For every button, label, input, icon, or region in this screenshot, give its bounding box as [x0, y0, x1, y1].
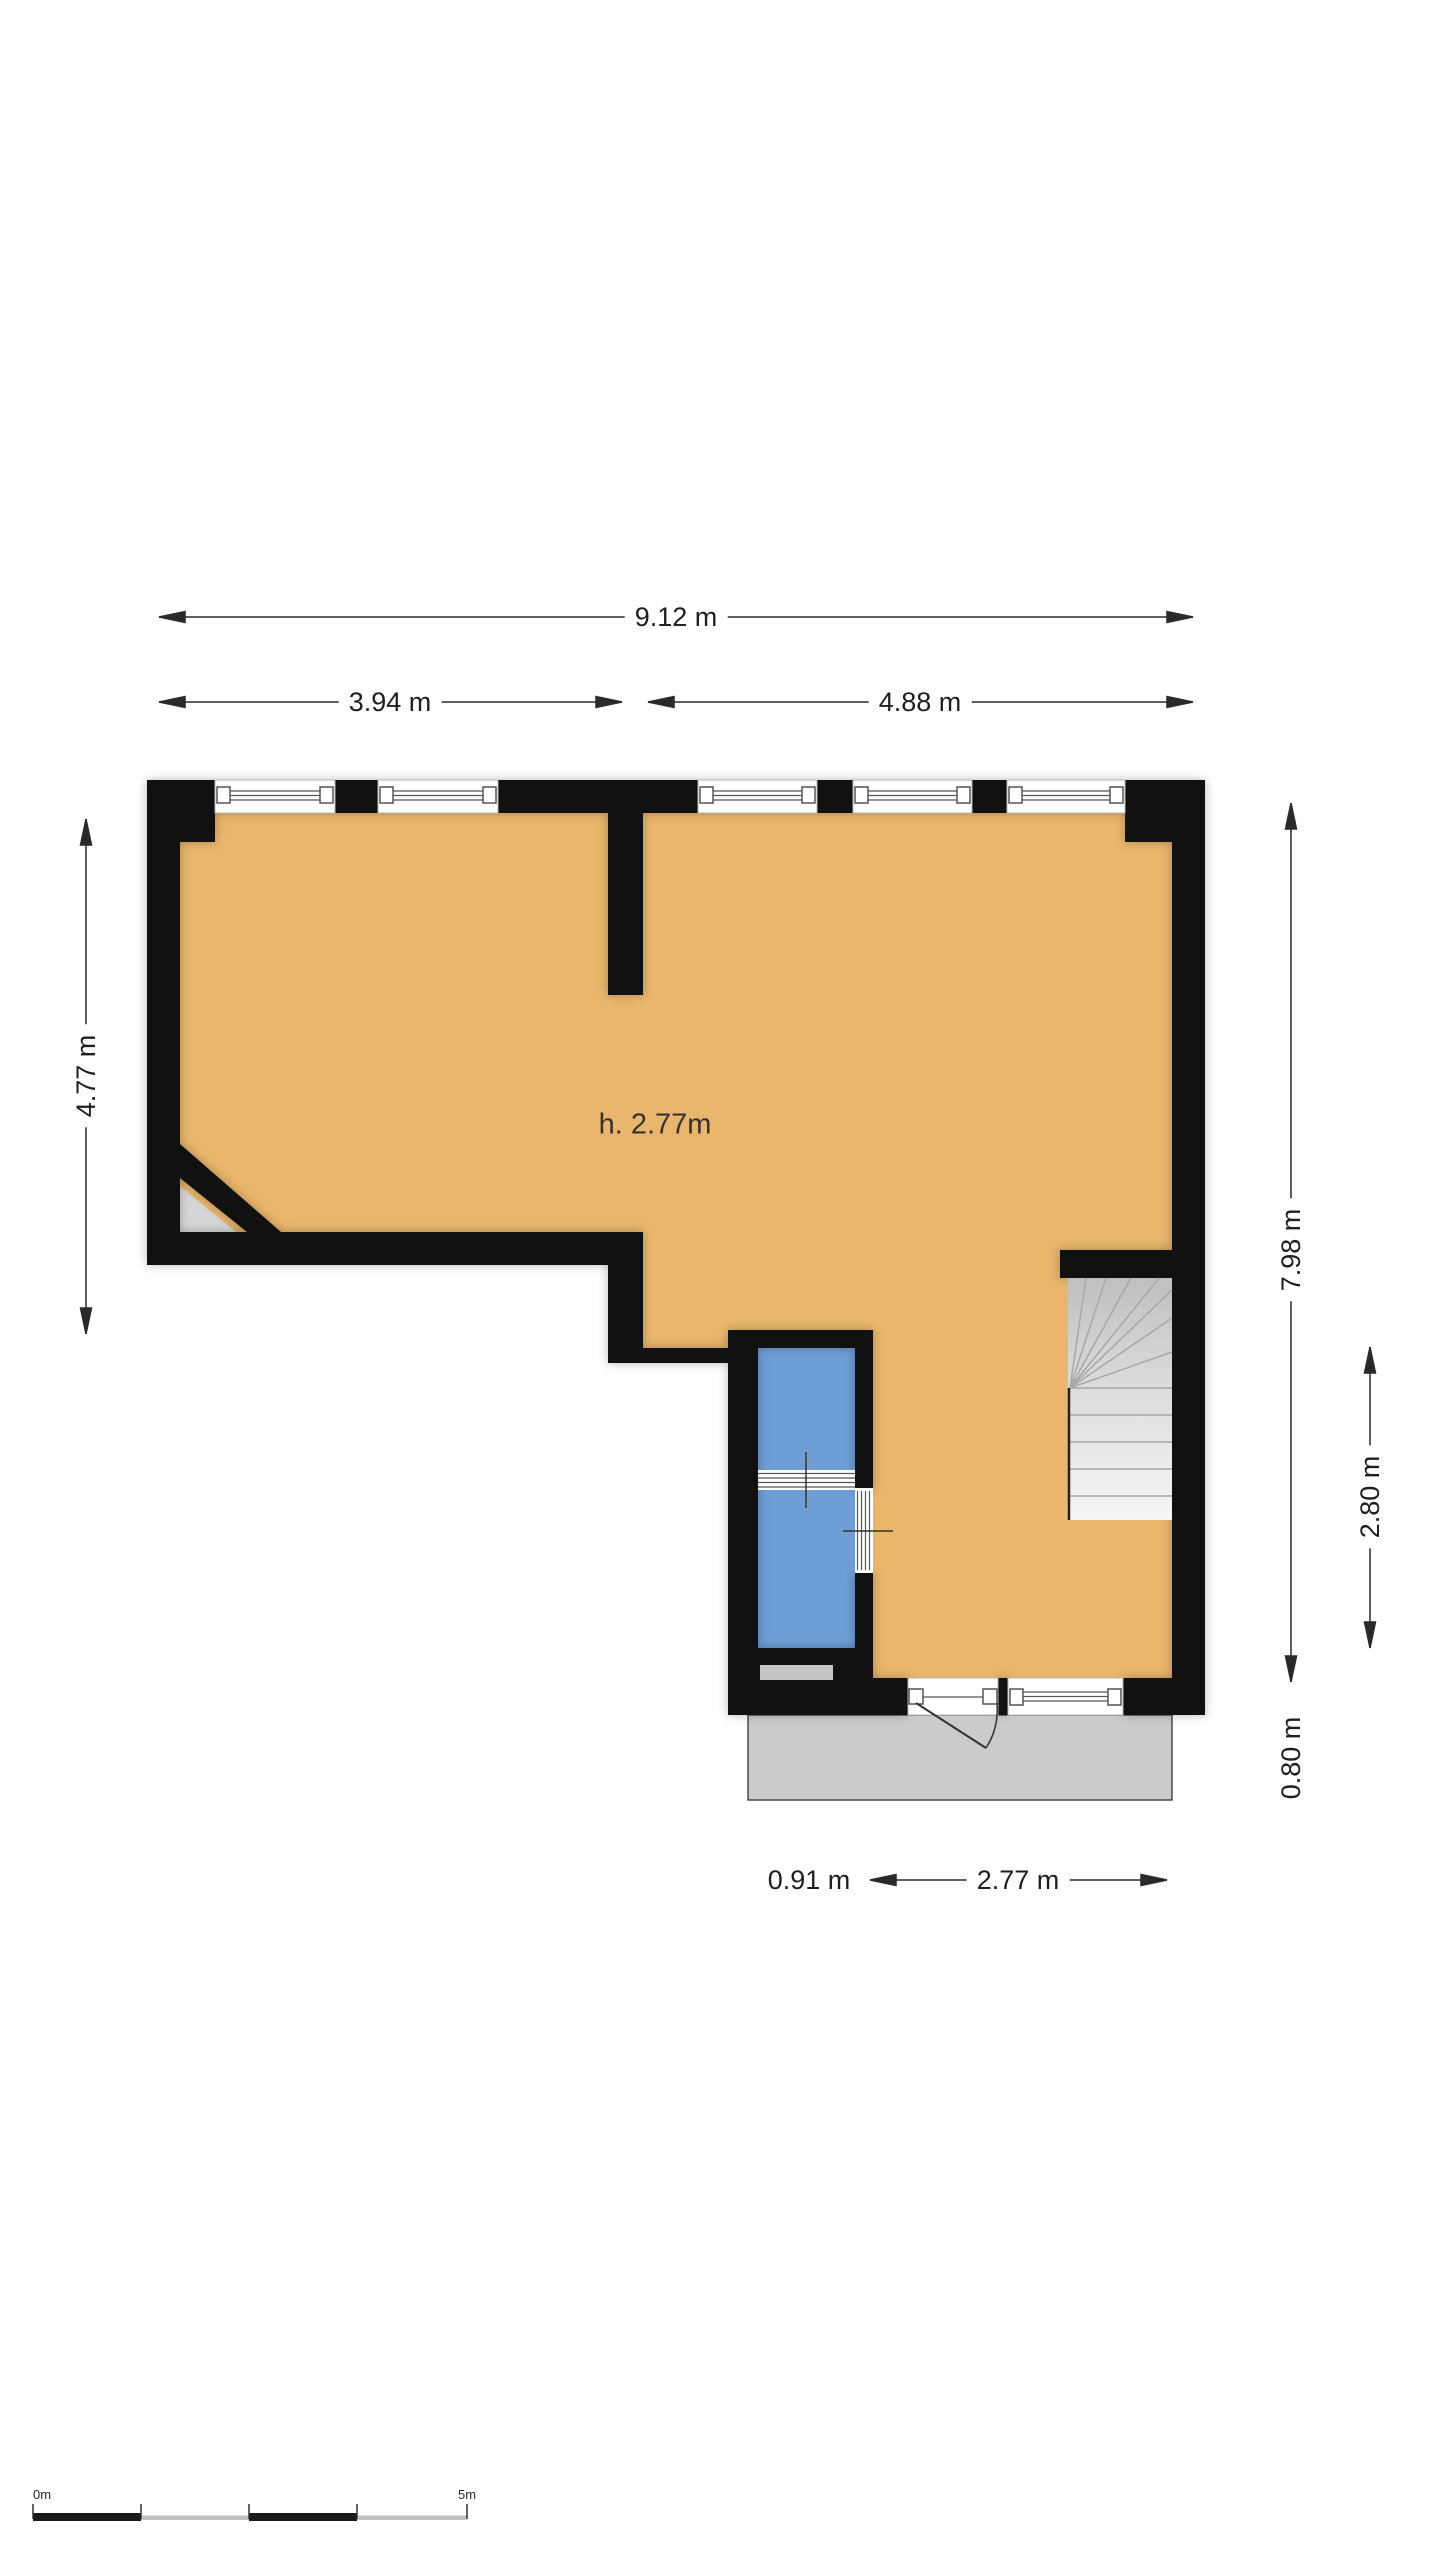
window [853, 780, 972, 813]
scale-label-5m: 5m [458, 2487, 476, 2502]
dimension-label-hall-width: 2.77 m [967, 1863, 1070, 1897]
dimension-label-left-height: 4.77 m [69, 1025, 103, 1128]
dimension-label-stair-well-depth: 2.80 m [1353, 1446, 1387, 1549]
dimension-label-total-width: 9.12 m [625, 600, 728, 634]
balcony [748, 1715, 1172, 1800]
scale-label-0m: 0m [33, 2487, 51, 2502]
window [1008, 1678, 1123, 1715]
ceiling-height-label: h. 2.77m [599, 1109, 712, 1142]
dimension-label-bath-width: 0.91 m [758, 1863, 861, 1897]
window [215, 780, 335, 813]
floor-plan-canvas: 9.12 m 3.94 m 4.88 m 4.77 m 7.98 m 2.80 … [0, 0, 1440, 2560]
scale-bar [33, 2504, 467, 2521]
window [698, 780, 817, 813]
floor-plan-drawing [0, 0, 1440, 2560]
peninsula-floor [643, 1232, 728, 1348]
dimension-label-left-width: 3.94 m [339, 685, 442, 719]
dimension-label-right-height: 7.98 m [1274, 1199, 1308, 1302]
window [378, 780, 498, 813]
window [1007, 780, 1125, 813]
bathroom-floor [758, 1348, 855, 1470]
main-room-floor [180, 813, 1172, 1232]
wall-niche [760, 1665, 833, 1680]
dimension-label-balcony-depth: 0.80 m [1274, 1707, 1308, 1810]
staircase [1068, 1278, 1172, 1520]
dimension-label-right-width: 4.88 m [869, 685, 972, 719]
wc-floor [758, 1490, 855, 1648]
